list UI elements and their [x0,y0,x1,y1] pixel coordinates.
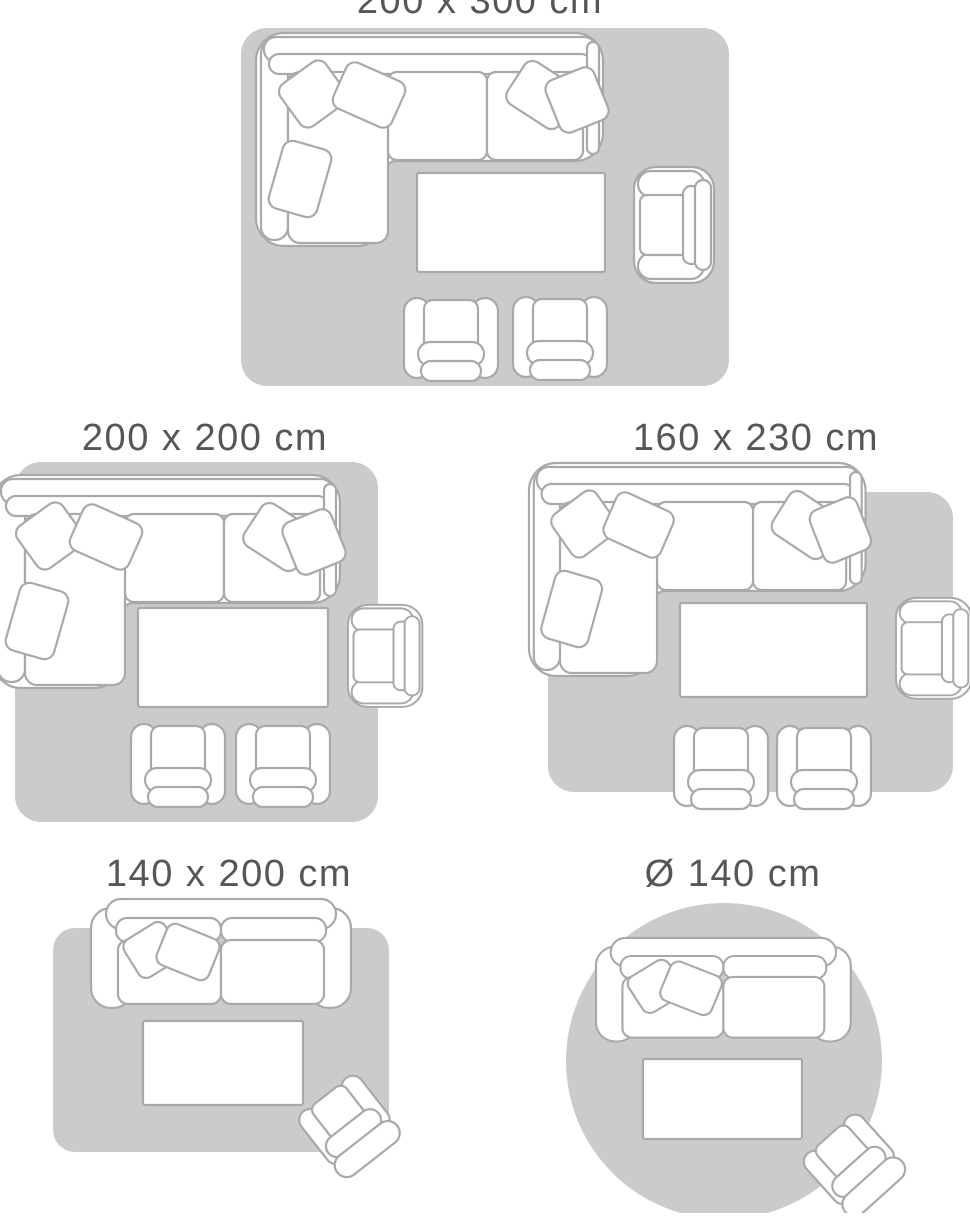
coffee-table [643,1059,802,1139]
coffee-table [143,1021,303,1105]
chair [674,726,768,809]
diagram-200x300: 200 x 300 cm [241,0,729,386]
coffee-table [138,608,328,707]
chair [404,298,498,381]
size-label: 160 x 230 cm [633,417,879,459]
size-label: 140 x 200 cm [106,853,352,895]
diagram-140x200: 140 x 200 cm [53,853,405,1182]
chair [131,724,225,807]
armchair [634,167,714,283]
chair [236,724,330,807]
armchair [348,605,422,707]
size-label: 200 x 200 cm [82,417,328,459]
loveseat-sofa [91,899,351,1008]
diagram-round-140: Ø 140 cm [566,853,910,1213]
diagram-160x230: 160 x 230 cm [529,417,970,809]
size-label: 200 x 300 cm [357,0,603,22]
size-label: Ø 140 cm [645,853,822,895]
chair [777,726,871,809]
coffee-table [417,173,605,272]
loveseat-sofa [596,938,851,1042]
chair [513,297,607,380]
coffee-table [680,603,867,697]
armchair [896,598,970,699]
diagram-200x200: 200 x 200 cm [0,417,422,822]
rug-size-guide: 200 x 300 cm 200 x 200 cm 160 x 230 cm 1… [0,0,970,1218]
